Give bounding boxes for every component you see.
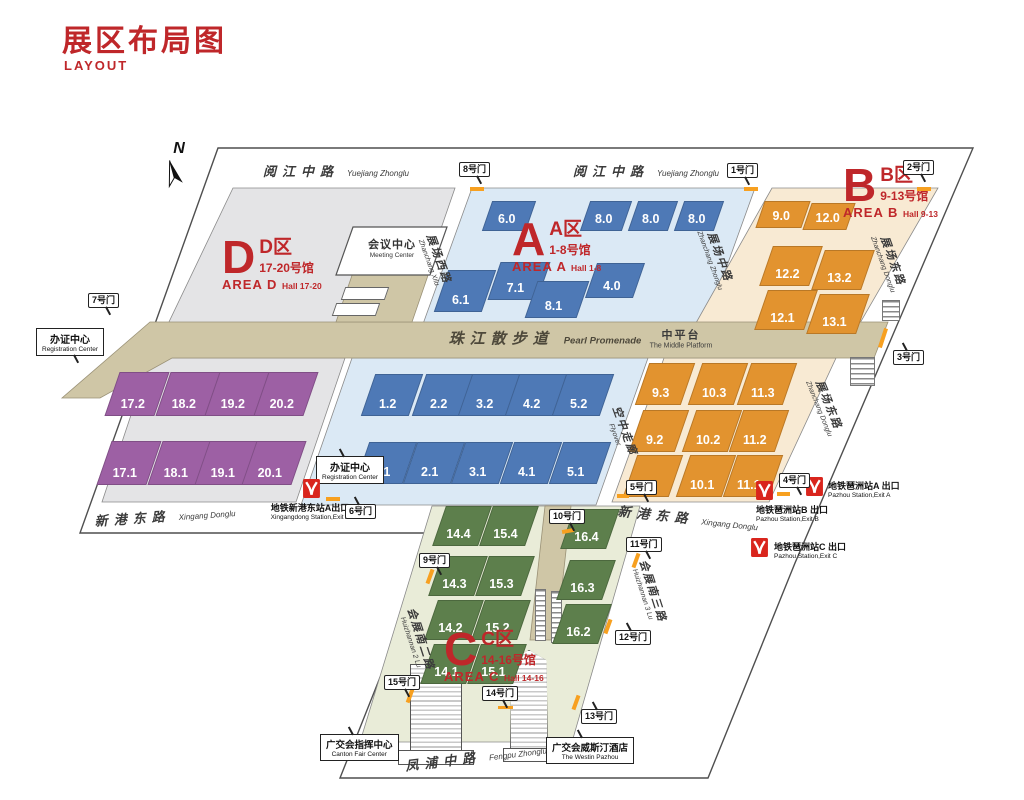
hall-number: 15.4 [493, 528, 517, 546]
meeting-center-steps [341, 287, 389, 300]
hall-number: 10.3 [702, 387, 726, 405]
area-d-en: AREA D Hall 17-20 [222, 277, 322, 292]
gate-9: 9号门 [419, 553, 450, 568]
gate-mark [744, 187, 758, 191]
area-d-zone: D区 [259, 238, 314, 259]
metro-icon [303, 479, 320, 498]
hall-number: 12.2 [775, 268, 799, 286]
gate-mark [470, 187, 484, 191]
area-c-letter: C [444, 630, 477, 669]
gate-7: 7号门 [88, 293, 119, 308]
hall-number: 16.2 [566, 626, 590, 644]
hall-number: 14.4 [446, 528, 470, 546]
hall-number: 18.1 [164, 467, 188, 485]
hall-number: 12.0 [816, 212, 840, 230]
area-c-en: AREA C Hall 14-16 [444, 669, 544, 684]
meeting-center-label: 会议中心 Meeting Center [352, 236, 432, 259]
hall-number: 4.0 [604, 280, 621, 298]
metro-icon [751, 538, 768, 557]
hall-number: 20.1 [258, 467, 282, 485]
area-b-en: AREA B Hall 9-13 [843, 205, 938, 220]
area-a-zone: A区 [549, 220, 590, 241]
exhibition-layout-map: 展区布局图 LAYOUT N D D区 17-20号馆 AREA D Hall … [0, 0, 1024, 800]
hall-number: 9.2 [646, 434, 663, 452]
gate-10: 10号门 [549, 509, 585, 524]
metro-exit-pazhou-a: 地铁琶洲站A 出口Pazhou Station,Exit A [828, 479, 900, 499]
area-a-letter: A [512, 220, 545, 259]
hall-b-0: 9.0 [755, 201, 810, 228]
registration-center-west: 办证中心 Registration Center [36, 328, 104, 356]
gate-5: 5号门 [626, 480, 657, 495]
road-name-en: Yuejiang Zhonglu [657, 169, 719, 178]
hall-number: 8.0 [688, 213, 705, 231]
stairs [850, 357, 875, 386]
registration-center-central: 办证中心 Registration Center [316, 456, 384, 484]
road-name-zh: 新港东路 [94, 509, 171, 529]
compass-needle-icon [155, 155, 192, 192]
hall-number: 18.2 [172, 398, 196, 416]
hall-number: 2.2 [430, 398, 447, 416]
area-d-letter: D [222, 238, 255, 277]
gate-4: 4号门 [779, 473, 810, 488]
gate-13: 13号门 [581, 709, 617, 724]
middle-platform-label: 中平台The Middle Platform [650, 327, 713, 350]
area-a-range: 1-8号馆 [549, 241, 590, 258]
hall-number: 11.3 [751, 387, 775, 405]
gate-11: 11号门 [626, 537, 662, 552]
area-c-range: 14-16号馆 [481, 651, 536, 668]
area-label-a: A A区 1-8号馆 AREA A Hall 1-8 [512, 220, 601, 274]
area-a-en: AREA A Hall 1-8 [512, 259, 601, 274]
hall-number: 15.3 [489, 578, 513, 596]
road-label-yuejiang: 阅江中路Yuejiang Zhonglu [263, 161, 409, 181]
hall-number: 5.1 [567, 466, 584, 484]
hall-number: 8.0 [642, 213, 659, 231]
hall-number: 1.2 [379, 398, 396, 416]
area-c-zone: C区 [481, 630, 536, 651]
road-name-zh: 阅江中路 [263, 164, 339, 179]
hall-number: 2.1 [421, 466, 438, 484]
meeting-center-steps [332, 303, 380, 316]
area-d-range: 17-20号馆 [259, 259, 314, 276]
hall-number: 16.3 [570, 582, 594, 600]
hall-number: 13.1 [822, 316, 846, 334]
metro-icon [756, 481, 773, 500]
hall-number: 10.2 [696, 434, 720, 452]
hall-number: 10.1 [690, 479, 714, 497]
gate-14: 14号门 [482, 686, 518, 701]
gate-2: 2号门 [903, 160, 934, 175]
hall-number: 3.2 [476, 398, 493, 416]
area-label-d: D D区 17-20号馆 AREA D Hall 17-20 [222, 238, 322, 292]
hall-number: 9.3 [652, 387, 669, 405]
area-b-letter: B [843, 166, 876, 205]
gate-6: 6号门 [345, 504, 376, 519]
hall-number: 9.0 [773, 210, 790, 228]
gate-3: 3号门 [893, 350, 924, 365]
road-name-zh: 阅江中路 [573, 164, 649, 179]
pearl-promenade-label: 珠江散步道Pearl Promenade [449, 328, 642, 349]
hall-number: 16.4 [574, 531, 598, 549]
hall-number: 19.2 [221, 398, 245, 416]
road-name-en: Yuejiang Zhonglu [347, 169, 409, 178]
road-name-en: Xingang Donglu [701, 517, 759, 532]
hall-number: 20.2 [270, 398, 294, 416]
area-label-c: C C区 14-16号馆 AREA C Hall 14-16 [444, 630, 544, 684]
metro-exit-pazhou-b: 地铁琶洲站B 出口Pazhou Station,Exit B [756, 503, 828, 523]
hall-number: 4.2 [523, 398, 540, 416]
metro-exit-pazhou-c: 地铁琶洲站C 出口Pazhou Station,Exit C [774, 540, 846, 560]
hall-number: 13.2 [827, 272, 851, 290]
gate-1: 1号门 [727, 163, 758, 178]
hall-number: 17.2 [121, 398, 145, 416]
hall-number: 11.2 [743, 434, 767, 452]
page-title: 展区布局图 [62, 16, 227, 60]
westin-label: 广交会威斯汀酒店 The Westin Pazhou [546, 737, 634, 764]
hall-number: 12.1 [770, 312, 794, 330]
hall-number: 14.3 [442, 578, 466, 596]
hall-number: 17.1 [113, 467, 137, 485]
hall-number: 6.1 [452, 294, 469, 312]
gate-mark [777, 492, 790, 496]
stairs [882, 300, 900, 321]
gate-mark [917, 187, 931, 191]
compass: N [158, 140, 188, 193]
hall-number: 8.1 [545, 300, 562, 318]
hall-number: 7.1 [507, 282, 524, 300]
page-title-en: LAYOUT [64, 58, 128, 73]
hall-number: 5.2 [570, 398, 587, 416]
road-name-en: Xingang Donglu [178, 509, 235, 522]
gate-12: 12号门 [615, 630, 651, 645]
gate-8: 8号门 [459, 162, 490, 177]
hall-number: 3.1 [469, 466, 486, 484]
canton-fair-center-label: 广交会指挥中心 Canton Fair Center [320, 734, 399, 761]
hall-number: 4.1 [518, 466, 535, 484]
road-label-yuejiang: 阅江中路Yuejiang Zhonglu [573, 161, 719, 181]
gate-15: 15号门 [384, 675, 420, 690]
hall-number: 19.1 [211, 467, 235, 485]
